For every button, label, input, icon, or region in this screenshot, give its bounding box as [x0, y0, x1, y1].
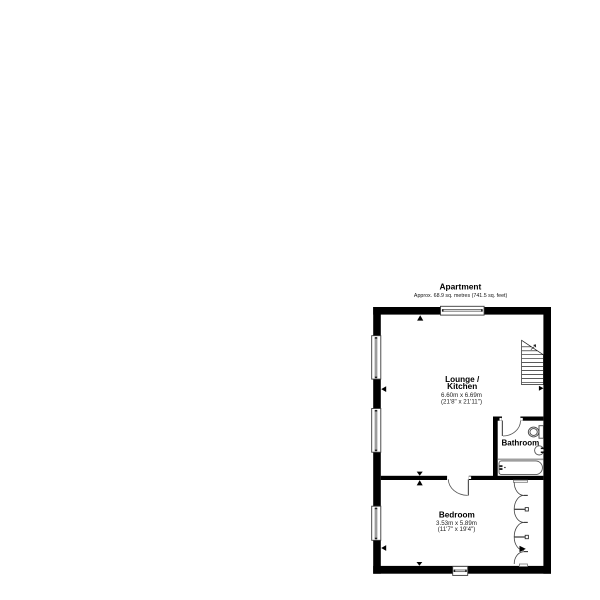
svg-text:(21'8" x 21'11"): (21'8" x 21'11"): [441, 398, 482, 405]
svg-text:Bathroom: Bathroom: [502, 438, 540, 447]
svg-text:Bedroom: Bedroom: [439, 510, 475, 519]
svg-text:Approx. 68.9 sq. metres (741.5: Approx. 68.9 sq. metres (741.5 sq. feet): [414, 293, 508, 299]
svg-text:Kitchen: Kitchen: [447, 382, 477, 391]
svg-text:Apartment: Apartment: [439, 281, 481, 291]
svg-text:(11'7" x 19'4"): (11'7" x 19'4"): [438, 526, 476, 533]
